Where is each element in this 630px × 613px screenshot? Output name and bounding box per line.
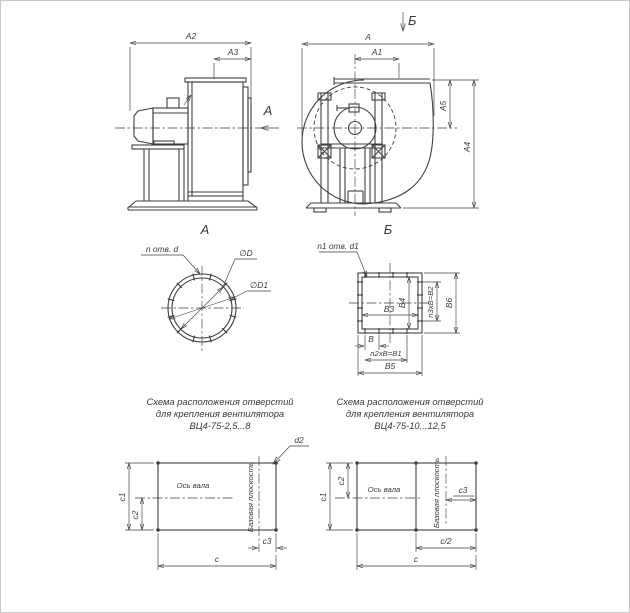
dim-label-b5: B5 <box>385 361 396 371</box>
drawing-line <box>273 446 290 464</box>
outlet-holes-label: n1 отв. d1 <box>317 241 359 251</box>
drawing-line <box>183 255 200 274</box>
inlet-collar-side <box>243 87 248 185</box>
caption-small-1: Схема расположения отверстий <box>147 396 295 407</box>
outlet-view-title: Б <box>384 222 393 237</box>
motor-bracket <box>132 145 184 149</box>
dim-label-c2-small: c2 <box>130 510 140 519</box>
drawing-line <box>129 201 136 207</box>
axis-label-small: Ось вала <box>177 481 210 490</box>
caption-large-2: для крепления вентилятора <box>346 408 474 419</box>
inlet-flange-view: А n отв. d ∅D ∅D1 <box>141 222 271 351</box>
drawing-line <box>177 283 182 288</box>
dim-label-b3: B3 <box>384 304 395 314</box>
dim-label-a: A <box>364 32 371 42</box>
dim-label-b4: B4 <box>397 298 407 309</box>
drawing-line <box>306 203 311 208</box>
drawing-line <box>414 528 418 532</box>
drawing-line <box>248 201 256 207</box>
drawing-line <box>372 93 385 100</box>
dim-label-a2: A2 <box>185 31 197 41</box>
drawing-line <box>474 461 478 465</box>
view-arrow-a-label: А <box>263 103 273 118</box>
dim-label-c2-large: c2 <box>336 476 346 485</box>
motor-terminal-box <box>167 98 179 108</box>
drawing-line <box>156 461 160 465</box>
dim-label-c3-large: c3 <box>459 485 468 495</box>
dim-label-c-half: c/2 <box>440 536 452 546</box>
drawing-line <box>156 528 160 532</box>
dim-label-b2: n3xB=B2 <box>426 286 435 318</box>
dim-label-a3: A3 <box>227 47 239 57</box>
inlet-view-title: А <box>200 222 210 237</box>
axis-label-large: Ось вала <box>368 485 401 494</box>
dim-label-a1: A1 <box>371 47 382 57</box>
fan-drawing-svg: A2 A3 А <box>1 1 630 613</box>
dim-label-b6: B6 <box>444 298 454 309</box>
front-view: Б A A1 A5 A4 <box>297 12 479 216</box>
side-view: A2 A3 А <box>115 31 279 210</box>
drawing-line <box>355 461 359 465</box>
drawing-line <box>414 461 418 465</box>
drawing-line <box>396 203 401 208</box>
caption-large-3: ВЦ4-75-10...12,5 <box>374 420 446 431</box>
plane-label-large: Базовая плоскость <box>432 458 441 528</box>
dim-label-c1-large: c1 <box>318 493 328 502</box>
dim-label-a4: A4 <box>462 142 472 154</box>
drawing-line <box>248 98 251 172</box>
inlet-holes-label: n отв. d <box>146 244 179 254</box>
outlet-flange-side <box>185 78 246 82</box>
dim-label-dia-d: ∅D <box>239 248 252 258</box>
plane-label-small: Базовая плоскость <box>246 462 255 532</box>
dim-label-c-large: c <box>414 554 419 564</box>
view-arrow-b-label: Б <box>408 13 417 28</box>
drawing-line <box>274 528 278 532</box>
dim-label-c3-small: c3 <box>263 536 272 546</box>
mounting-diagram-small: Схема расположения отверстий для креплен… <box>117 396 309 570</box>
drawing-line <box>474 528 478 532</box>
dim-label-d2: d2 <box>294 435 304 445</box>
caption-large-1: Схема расположения отверстий <box>337 396 485 407</box>
drawing-line <box>222 328 227 333</box>
scroll-housing-side <box>188 82 243 196</box>
dim-label-b1: n2xB=B1 <box>370 349 401 358</box>
drawing-line <box>355 528 359 532</box>
dim-label-a5: A5 <box>438 101 448 113</box>
caption-small-2: для крепления вентилятора <box>156 408 284 419</box>
mount-outline-small <box>158 463 276 530</box>
drawing-line <box>314 208 326 212</box>
caption-small-3: ВЦ4-75-2,5...8 <box>189 420 251 431</box>
drawing-line <box>379 208 391 212</box>
drawing-sheet: A2 A3 А <box>0 0 630 613</box>
outlet-flange-view: Б n1 отв. d1 B3 B4 n3xB=B2 <box>317 222 460 376</box>
dim-label-c-small: c <box>215 554 220 564</box>
dim-label-b: B <box>368 334 374 344</box>
dim-label-dia-d1: ∅D1 <box>250 280 268 290</box>
dim-label-c1-small: c1 <box>117 493 127 502</box>
mounting-diagram-large: Схема расположения отверстий для креплен… <box>318 396 484 570</box>
motor-end-cap <box>134 108 153 144</box>
drawing-line <box>223 259 235 287</box>
drawing-line <box>235 291 247 297</box>
